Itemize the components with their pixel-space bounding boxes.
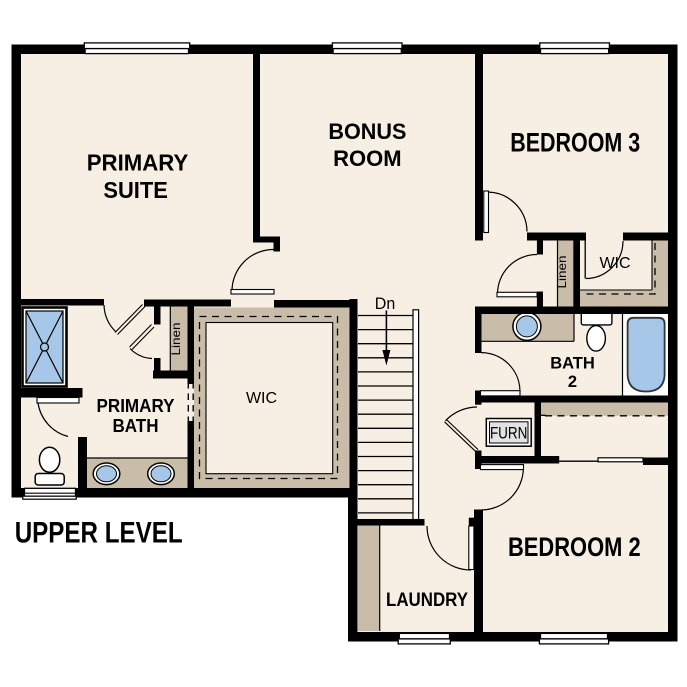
svg-text:Linen: Linen (169, 323, 183, 356)
svg-text:ROOM: ROOM (333, 146, 402, 171)
svg-text:BEDROOM 3: BEDROOM 3 (510, 128, 640, 158)
svg-text:BATH: BATH (550, 355, 595, 373)
svg-text:WIC: WIC (246, 390, 277, 407)
svg-text:LAUNDRY: LAUNDRY (386, 589, 468, 611)
svg-text:WIC: WIC (599, 255, 630, 272)
svg-text:BATH: BATH (113, 415, 159, 436)
svg-text:Linen: Linen (555, 256, 569, 289)
svg-text:BONUS: BONUS (328, 119, 406, 144)
svg-text:Dn: Dn (375, 295, 396, 313)
svg-text:BEDROOM 2: BEDROOM 2 (508, 532, 641, 562)
svg-text:PRIMARY: PRIMARY (87, 150, 189, 176)
svg-text:SUITE: SUITE (103, 177, 168, 203)
svg-text:2: 2 (568, 373, 577, 391)
svg-text:UPPER LEVEL: UPPER LEVEL (15, 517, 183, 550)
svg-text:FURN: FURN (490, 424, 528, 443)
svg-text:PRIMARY: PRIMARY (97, 395, 176, 416)
